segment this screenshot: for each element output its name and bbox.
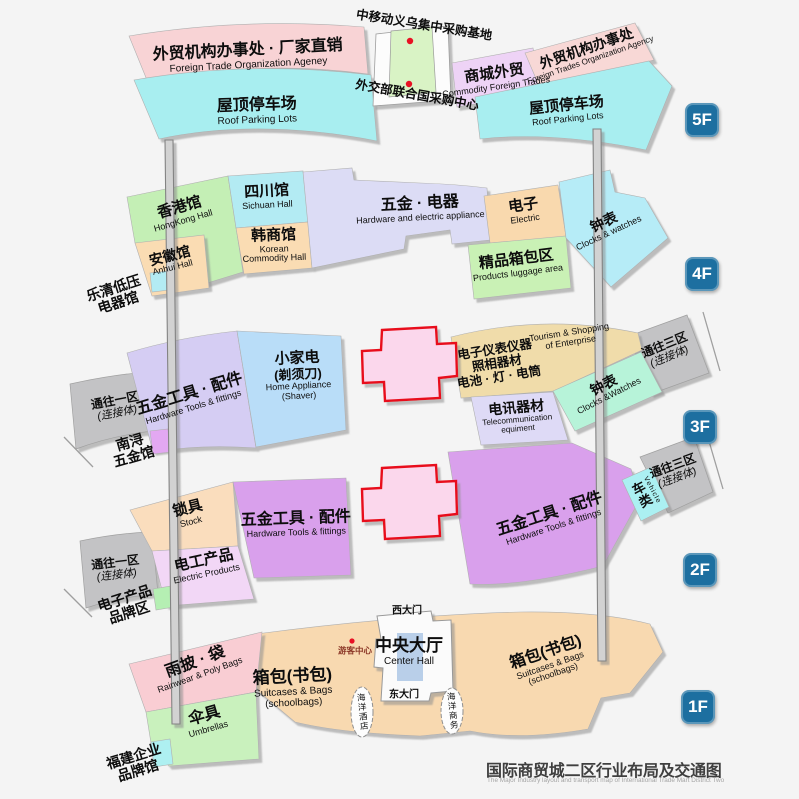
- connector-3f-east-tick: [703, 312, 720, 371]
- label-west-gate: 西大门: [392, 606, 422, 617]
- floor-badge-5f: 5F: [685, 103, 719, 137]
- map-title-en: The Major Industry layout and transport …: [487, 777, 724, 784]
- floor-badge-1f: 1F: [681, 690, 715, 724]
- block-2f-cross-link: [362, 465, 457, 539]
- label-4f-korean: 韩商馆 Korean Commodity Hall: [242, 227, 307, 265]
- label-4f-electric: 电子 Electric: [507, 196, 540, 226]
- label-east-gate: 东大门: [389, 690, 419, 701]
- label-5f-roof-left: 屋顶停车场 Roof Parking Lots: [217, 95, 298, 126]
- floor-badge-2f: 2F: [683, 553, 717, 587]
- label-4f-sichuan: 四川馆 Sichuan Hall: [241, 183, 293, 212]
- label-1f-bags-left: 箱包(书包) Suitcases & Bags (schoolbags): [252, 666, 333, 711]
- label-center-hall: 中央大厅 Center Hall: [375, 637, 443, 667]
- visitor-center-dot: [349, 638, 354, 643]
- floor-badge-3f: 3F: [683, 410, 717, 444]
- trade-mart-floor-map: 外贸机构办事处 · 厂家直销 Foreign Trade Organizatio…: [0, 0, 799, 799]
- label-visitor-center: 游客中心: [338, 646, 372, 655]
- red-dot-marker-top: [407, 38, 413, 44]
- floor-badge-4f: 4F: [685, 257, 719, 291]
- block-3f-cross-link: [362, 327, 457, 401]
- label-3f-telecom: 电讯器材 Telecommunication equiment: [481, 397, 554, 436]
- label-3f-home-appliance: 小家电 (剃须刀) Home Appliance (Shaver): [264, 349, 332, 403]
- label-2f-hardware-tools-center: 五金工具 · 配件 Hardware Tools & fittings: [240, 508, 351, 539]
